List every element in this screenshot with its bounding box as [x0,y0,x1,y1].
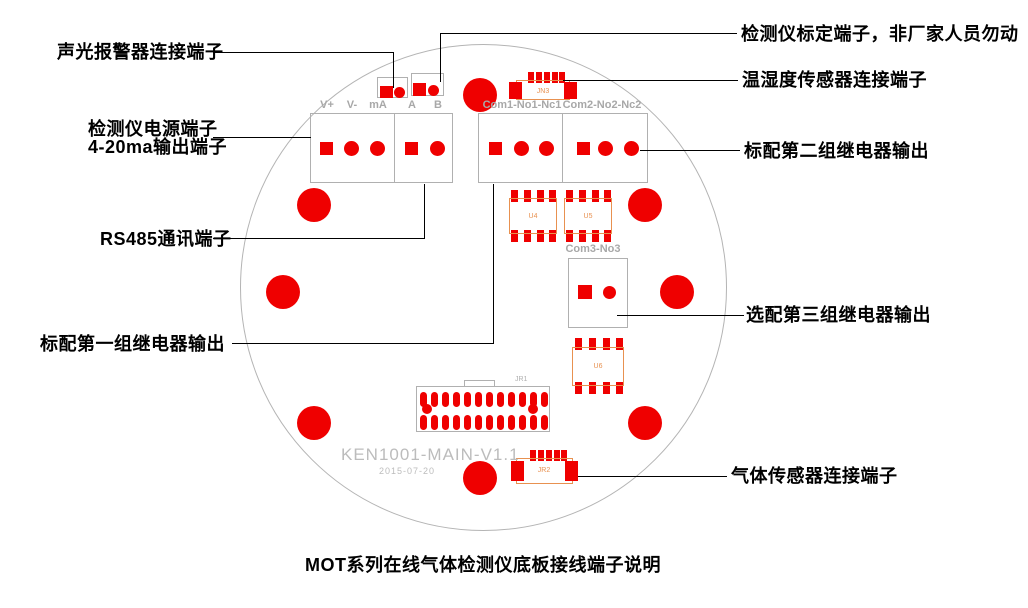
terminal-label-relay1: Com1-No1-Nc1 [483,100,562,111]
callout-gas-sensor: 气体传感器连接端子 [731,467,898,485]
leader-temp-humidity [563,80,738,81]
alarm-connector-pad [394,87,405,98]
mounting-hole [266,275,300,309]
callout-relay2: 标配第二组继电器输出 [744,142,929,160]
silk-date-text: 2015-07-20 [379,466,435,476]
jr1-pad [528,404,538,414]
mounting-hole [297,188,331,222]
power-terminal-pad [370,141,385,156]
jn3-pad [564,82,577,99]
jr2-ref-label: JR2 [538,467,550,474]
calibration-connector-pad [413,83,426,96]
jr1-pad [422,404,432,414]
leader-gas-sensor [578,476,727,477]
leader-alarm [393,52,394,88]
mounting-hole [660,275,694,309]
diagram-canvas: JN3 V+ V- mA A B Com1-No1-Nc1 Com2-No2-N… [0,0,1028,608]
leader-relay1 [232,343,494,344]
callout-output420: 4-20ma输出端子 [88,138,227,156]
power-terminal-pad [344,141,359,156]
relay3-terminal-block [568,258,628,328]
callout-relay1: 标配第一组继电器输出 [40,335,225,353]
leader-alarm [213,52,394,53]
jn3-pad [509,82,522,99]
calibration-connector-pad [428,85,439,96]
u4-ref-label: U4 [529,213,538,220]
callout-relay3: 选配第三组继电器输出 [746,306,931,324]
mounting-hole [463,461,497,495]
u6-ref-label: U6 [594,363,603,370]
leader-calibration [440,33,441,82]
mounting-hole [628,406,662,440]
terminal-label-vplus: V+ [320,100,334,111]
silk-model-text: KEN1001-MAIN-V1.1 [341,445,520,465]
mounting-hole [628,188,662,222]
leader-relay3 [617,315,744,316]
mounting-hole [297,406,331,440]
leader-relay1 [493,184,494,344]
callout-power: 检测仪电源端子 [88,120,218,138]
diagram-title: MOT系列在线气体检测仪底板接线端子说明 [237,551,729,577]
leader-power [213,137,311,138]
u5-ref-label: U5 [584,213,593,220]
relay2-terminal-pad [577,142,590,155]
leader-rs485 [424,184,425,239]
alarm-connector-pad [380,86,393,98]
relay1-terminal-pad [489,142,502,155]
terminal-label-ma: mA [369,100,387,111]
jn3-ref-label: JN3 [537,88,549,95]
jr2-pad [565,461,578,481]
jr1-pads-bottom [420,415,427,430]
relay3-terminal-pad [578,285,592,299]
relay1-terminal-pad [514,141,529,156]
rs485-terminal-pad [405,142,418,155]
terminal-label-vminus: V- [347,100,357,111]
relay2-terminal-pad [598,141,613,156]
rs485-terminal-pad [430,141,445,156]
power-terminal-pad [320,142,333,155]
leader-relay2 [640,150,740,151]
relay1-terminal-pad [539,141,554,156]
terminal-label-b: B [434,100,442,111]
terminal-label-a: A [408,100,416,111]
relay2-terminal-pad [624,141,639,156]
leader-calibration [440,33,737,34]
jr1-ref-label: JR1 [515,376,527,383]
callout-rs485: RS485通讯端子 [100,230,232,248]
terminal-label-relay2: Com2-No2-Nc2 [563,100,642,111]
callout-temp-humidity: 温湿度传感器连接端子 [742,71,927,89]
leader-rs485 [213,238,425,239]
callout-calibration: 检测仪标定端子，非厂家人员勿动 [741,25,1019,43]
terminal-label-relay3: Com3-No3 [565,244,620,255]
relay3-terminal-pad [603,286,616,299]
callout-alarm: 声光报警器连接端子 [57,43,224,61]
